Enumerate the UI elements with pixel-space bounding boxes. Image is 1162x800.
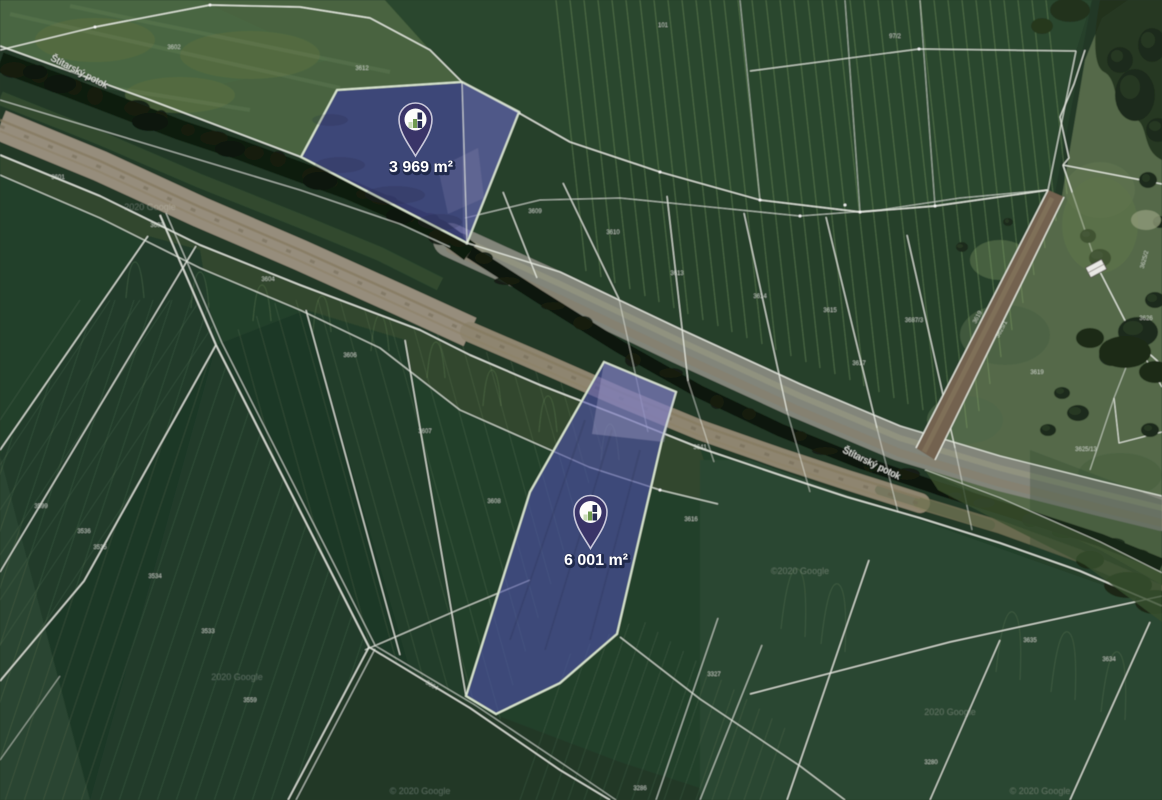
svg-text:2020 Google: 2020 Google <box>124 202 176 212</box>
svg-text:3536: 3536 <box>77 529 91 535</box>
svg-text:3634: 3634 <box>1102 657 1116 663</box>
svg-text:3619: 3619 <box>1030 370 1044 376</box>
svg-text:3625/13: 3625/13 <box>1075 447 1097 453</box>
svg-text:3607: 3607 <box>418 429 432 435</box>
svg-text:3535: 3535 <box>93 545 107 551</box>
svg-text:3617: 3617 <box>852 361 866 367</box>
svg-text:97/2: 97/2 <box>889 34 901 40</box>
svg-text:2020 Google: 2020 Google <box>924 707 976 717</box>
svg-text:3601: 3601 <box>51 175 65 181</box>
svg-text:3641: 3641 <box>693 445 707 451</box>
svg-text:© 2020 Google: © 2020 Google <box>390 786 451 796</box>
svg-text:6 001 m²: 6 001 m² <box>564 552 628 569</box>
svg-text:3609: 3609 <box>528 209 542 215</box>
svg-text:3533: 3533 <box>201 629 215 635</box>
svg-text:3606: 3606 <box>343 353 357 359</box>
svg-text:3614: 3614 <box>753 294 767 300</box>
svg-text:3604: 3604 <box>261 277 275 283</box>
svg-text:3602: 3602 <box>167 45 181 51</box>
svg-text:3613: 3613 <box>670 271 684 277</box>
svg-text:3603: 3603 <box>150 223 164 229</box>
svg-text:3534: 3534 <box>148 574 162 580</box>
svg-text:3635: 3635 <box>1023 638 1037 644</box>
svg-text:© 2020 Google: © 2020 Google <box>1010 786 1071 796</box>
svg-text:3599: 3599 <box>34 504 48 510</box>
svg-text:3616: 3616 <box>684 517 698 523</box>
svg-text:3327: 3327 <box>707 672 721 678</box>
svg-text:3610: 3610 <box>606 230 620 236</box>
svg-text:3626: 3626 <box>1139 316 1153 322</box>
svg-text:2020 Google: 2020 Google <box>211 672 263 682</box>
svg-text:3608: 3608 <box>487 499 501 505</box>
svg-text:3559: 3559 <box>243 698 257 704</box>
svg-text:101: 101 <box>658 23 669 29</box>
svg-text:3286: 3286 <box>633 786 647 792</box>
svg-text:3612: 3612 <box>355 66 369 72</box>
svg-text:3 969 m²: 3 969 m² <box>389 159 453 176</box>
svg-text:3687/3: 3687/3 <box>905 318 924 324</box>
svg-text:3615: 3615 <box>823 308 837 314</box>
svg-text:©2020 Google: ©2020 Google <box>771 566 829 576</box>
svg-text:3280: 3280 <box>924 760 938 766</box>
